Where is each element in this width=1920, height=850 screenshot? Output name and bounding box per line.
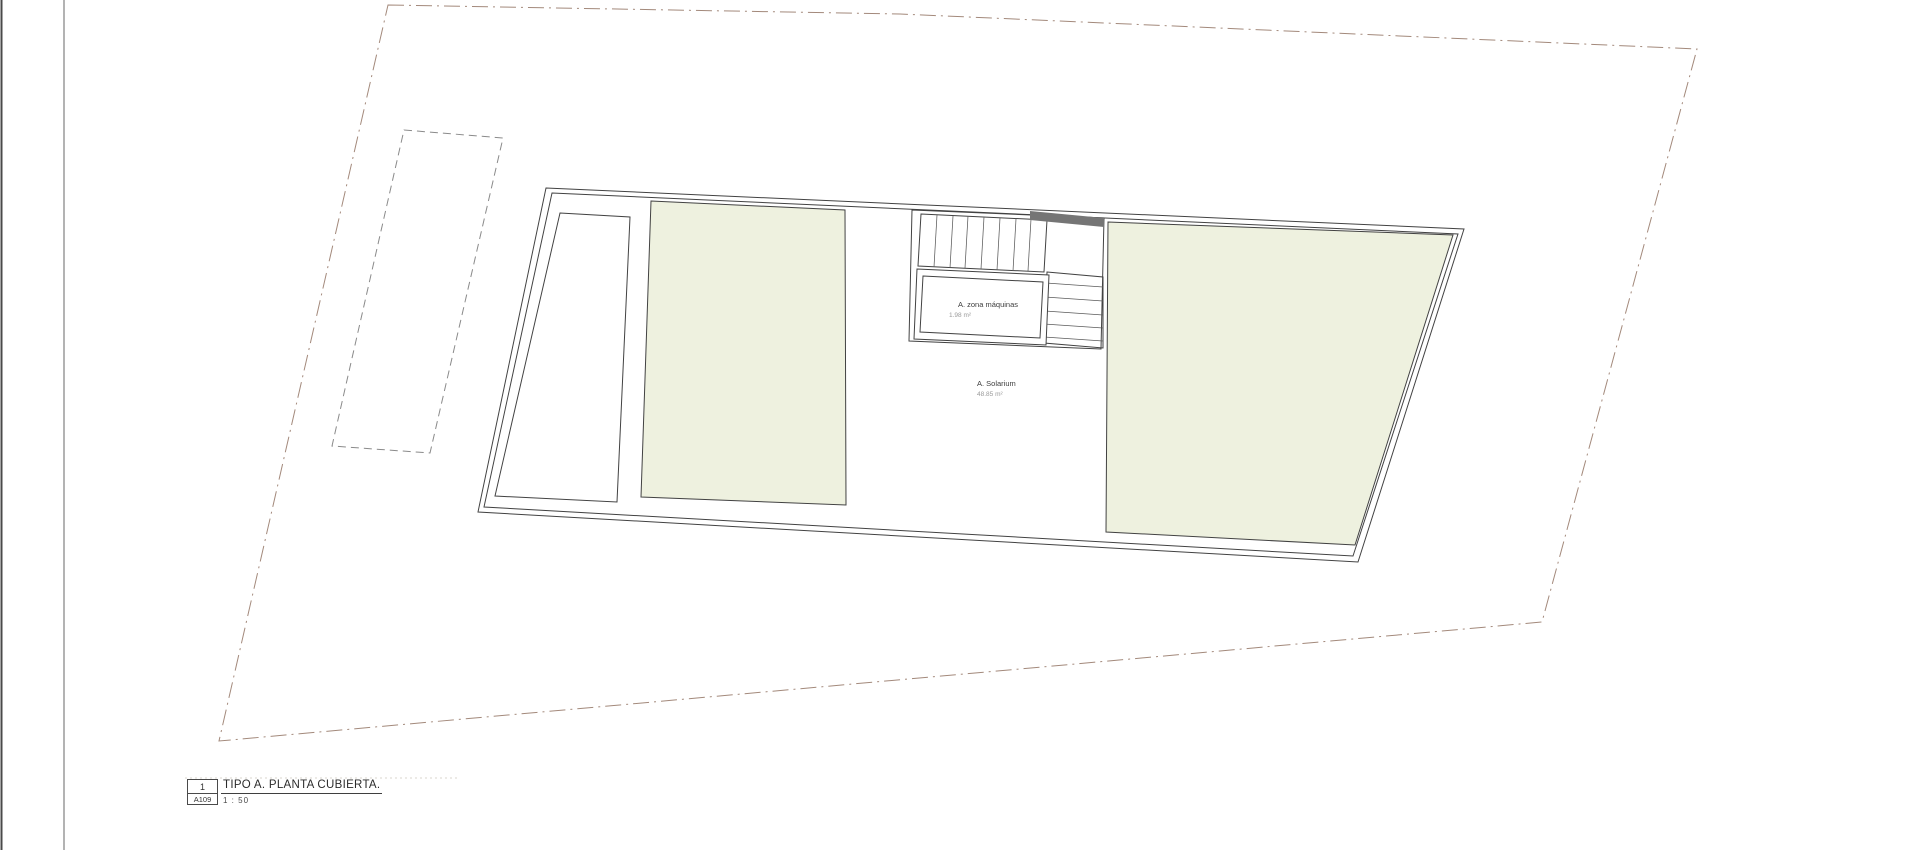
machine-room-label: A. zona máquinas xyxy=(958,300,1018,309)
solarium-label: A. Solarium xyxy=(977,379,1016,388)
title-block: 1 A109 TIPO A. PLANTA CUBIERTA. 1 : 50 xyxy=(187,779,382,805)
title-block-text: TIPO A. PLANTA CUBIERTA. 1 : 50 xyxy=(221,779,382,805)
drawing-sheet: A. zona máquinas 1.98 m² A. Solarium 48.… xyxy=(0,0,1920,850)
title-block-cells: 1 A109 xyxy=(187,779,218,805)
setback-dashed-rect xyxy=(332,130,503,453)
sheet-number: A109 xyxy=(187,794,218,805)
solarium-area: 48.85 m² xyxy=(977,391,1003,398)
drawing-title: TIPO A. PLANTA CUBIERTA. xyxy=(221,779,382,794)
green-roof-right xyxy=(1106,222,1453,545)
floorplan-canvas: A. zona máquinas 1.98 m² A. Solarium 48.… xyxy=(0,0,1920,850)
machine-room-area: 1.98 m² xyxy=(949,312,972,319)
detail-number: 1 xyxy=(187,779,218,794)
drawing-scale: 1 : 50 xyxy=(221,796,382,805)
green-roof-left xyxy=(641,201,846,505)
